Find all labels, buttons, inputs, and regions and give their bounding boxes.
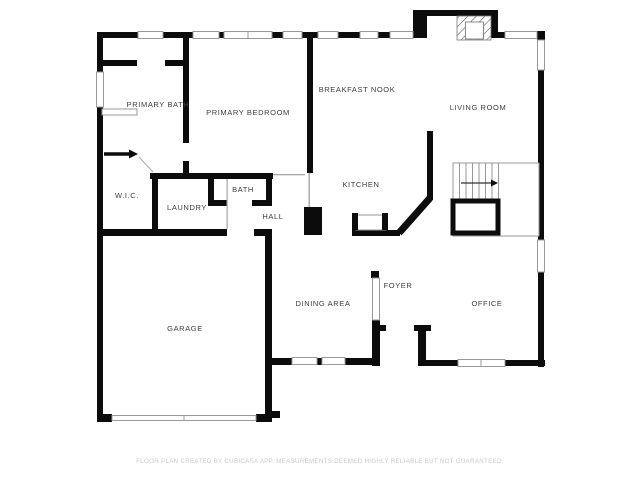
fireplace [457,16,491,40]
floor-plan-canvas: PRIMARY BATH PRIMARY BEDROOM BREAKFAST N… [0,0,640,480]
kitchen-appliance-block [304,207,322,235]
room-label-dining-area: DINING AREA [296,299,351,308]
door-swing-arrow [104,150,153,173]
bath-vanity-counter [102,109,137,115]
room-label-bath: BATH [232,185,254,194]
fireplace-firebox [466,22,484,39]
room-label-garage: GARAGE [167,324,203,333]
room-label-wic: W.I.C. [115,191,139,200]
room-label-hall: HALL [262,212,283,221]
room-label-office: OFFICE [471,299,502,308]
room-label-foyer: FOYER [384,281,413,290]
room-label-primary-bedroom: PRIMARY BEDROOM [206,108,290,117]
room-label-breakfast-nook: BREAKFAST NOOK [319,85,396,94]
interior-walls [97,37,433,236]
kitchen-island [352,213,388,230]
disclaimer-text: FLOOR PLAN CREATED BY CUBICASA APP. MEAS… [136,458,504,465]
room-label-primary-bath: PRIMARY BATH [127,100,190,109]
room-label-living-room: LIVING ROOM [450,103,507,112]
under-stair-closet [453,201,498,233]
floor-plan-drawing: PRIMARY BATH PRIMARY BEDROOM BREAKFAST N… [0,0,640,480]
kitchen-diagonal-wall [399,198,430,233]
room-label-kitchen: KITCHEN [342,180,379,189]
room-label-laundry: LAUNDRY [167,203,207,212]
staircase [453,163,539,236]
